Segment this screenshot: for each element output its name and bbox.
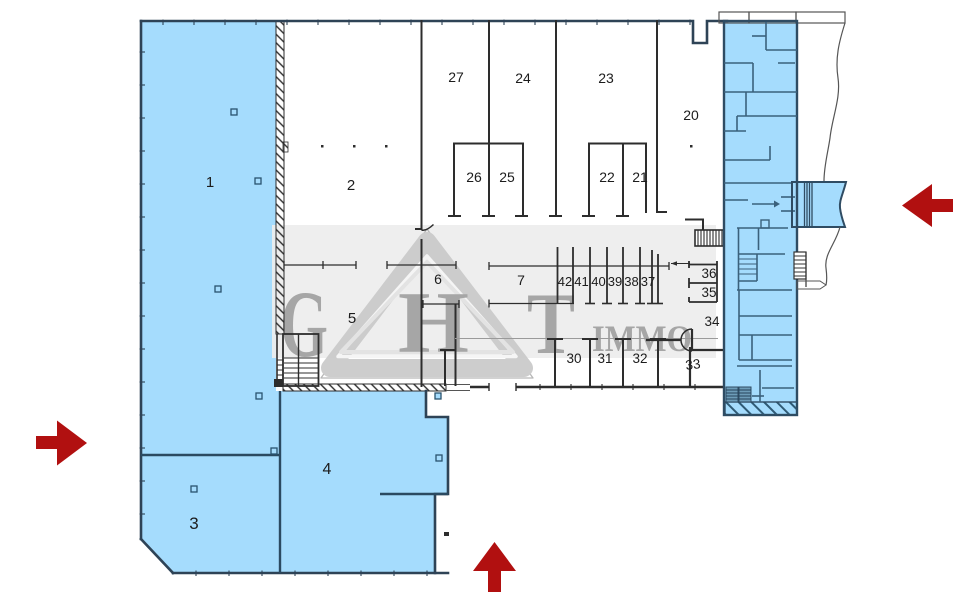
svg-text:32: 32 [632,351,647,366]
svg-text:25: 25 [499,169,515,185]
svg-text:36: 36 [701,266,716,281]
svg-text:27: 27 [448,69,464,85]
svg-text:38: 38 [624,274,638,289]
svg-text:34: 34 [704,314,720,329]
svg-text:5: 5 [348,310,356,327]
svg-text:2: 2 [347,177,355,194]
svg-text:23: 23 [598,70,614,86]
svg-text:35: 35 [701,285,716,300]
svg-text:22: 22 [599,169,615,185]
svg-text:H: H [398,275,469,372]
svg-text:30: 30 [566,351,581,366]
svg-text:24: 24 [515,70,531,86]
svg-text:G: G [280,271,328,377]
svg-text:37: 37 [641,274,655,289]
svg-text:41: 41 [574,274,588,289]
svg-text:31: 31 [597,351,612,366]
svg-text:20: 20 [683,107,699,123]
svg-text:7: 7 [517,272,525,288]
svg-text:6: 6 [434,271,442,287]
svg-text:4: 4 [323,461,332,478]
svg-text:26: 26 [466,169,482,185]
svg-text:1: 1 [206,174,214,191]
svg-text:3: 3 [189,514,198,533]
svg-text:42: 42 [558,274,572,289]
svg-text:33: 33 [685,356,702,373]
svg-text:21: 21 [632,169,648,185]
svg-text:39: 39 [608,274,622,289]
svg-text:40: 40 [591,274,605,289]
